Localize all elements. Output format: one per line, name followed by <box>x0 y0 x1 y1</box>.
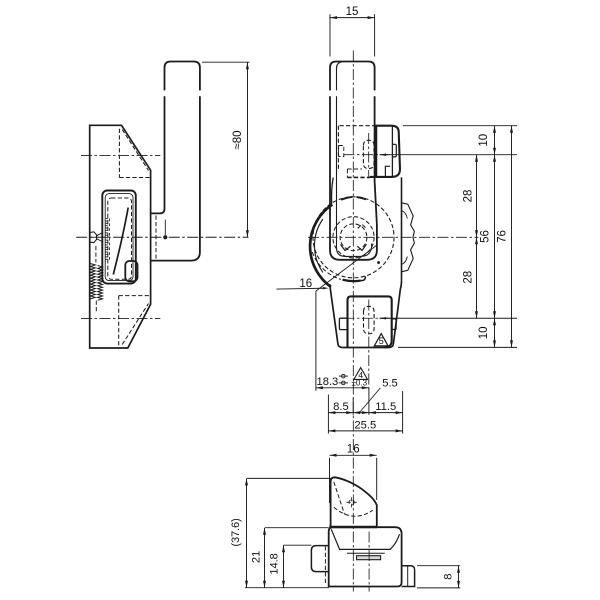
svg-text:10: 10 <box>478 326 490 339</box>
svg-text:8: 8 <box>442 573 454 579</box>
svg-text:11.5: 11.5 <box>375 401 396 413</box>
svg-text:15: 15 <box>346 6 359 18</box>
svg-text:16: 16 <box>347 444 360 456</box>
svg-text:5.5: 5.5 <box>382 377 398 389</box>
svg-text:8.5: 8.5 <box>333 401 349 413</box>
svg-text:5: 5 <box>379 336 384 346</box>
svg-text:≈80: ≈80 <box>232 130 244 149</box>
svg-text:28: 28 <box>463 190 475 203</box>
svg-text:±0.3: ±0.3 <box>352 379 368 388</box>
svg-text:18.3: 18.3 <box>317 376 339 388</box>
svg-text:28: 28 <box>463 271 475 284</box>
svg-text:16: 16 <box>299 278 312 290</box>
svg-text:56: 56 <box>480 230 492 243</box>
svg-text:25.5: 25.5 <box>354 420 376 432</box>
svg-text:(37.6): (37.6) <box>230 518 242 546</box>
svg-text:76: 76 <box>497 230 509 243</box>
svg-text:21: 21 <box>250 551 262 563</box>
svg-text:10: 10 <box>478 134 490 147</box>
svg-text:14.8: 14.8 <box>269 553 281 574</box>
